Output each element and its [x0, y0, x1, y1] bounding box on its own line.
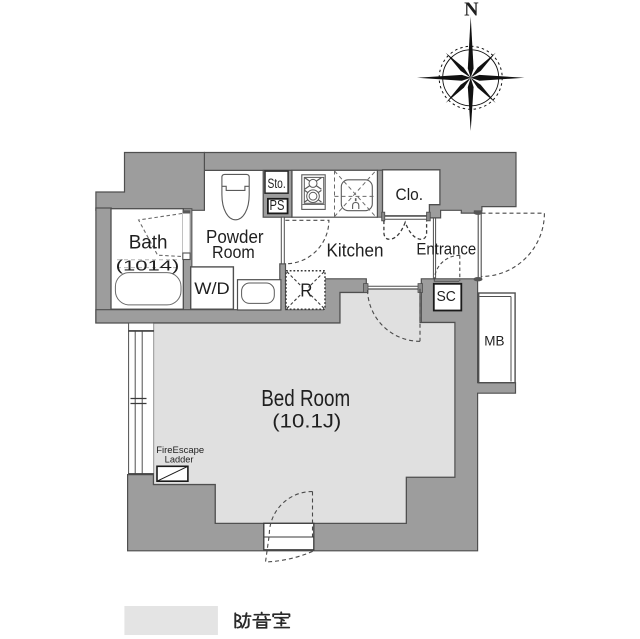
svg-text:Bed Room: Bed Room — [261, 385, 350, 411]
svg-text:Ladder: Ladder — [165, 455, 194, 465]
svg-text:(10.1J): (10.1J) — [272, 411, 341, 432]
svg-text:Kitchen: Kitchen — [327, 240, 384, 260]
svg-text:Room: Room — [212, 242, 255, 262]
svg-text:W/D: W/D — [194, 279, 230, 298]
svg-text:(1014): (1014) — [116, 259, 180, 275]
svg-text:SC: SC — [437, 288, 457, 305]
svg-text:Clo.: Clo. — [396, 186, 424, 204]
svg-text:Bath: Bath — [129, 233, 168, 254]
svg-text:Entrance: Entrance — [416, 240, 476, 258]
svg-text:N: N — [464, 0, 479, 21]
svg-text:R: R — [300, 281, 312, 301]
svg-text:Sto.: Sto. — [268, 176, 286, 191]
svg-text:PS: PS — [270, 198, 285, 214]
svg-text:MB: MB — [484, 334, 504, 349]
